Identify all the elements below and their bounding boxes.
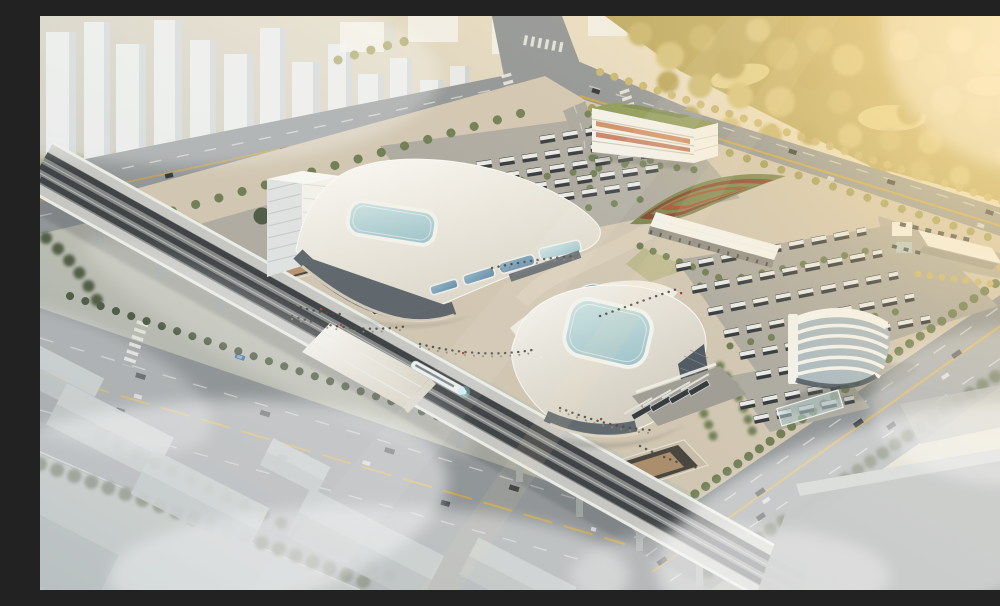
- aerial-rendering: [40, 16, 1000, 590]
- atmosphere-tint: [40, 16, 1000, 590]
- scene-canvas: [40, 16, 1000, 590]
